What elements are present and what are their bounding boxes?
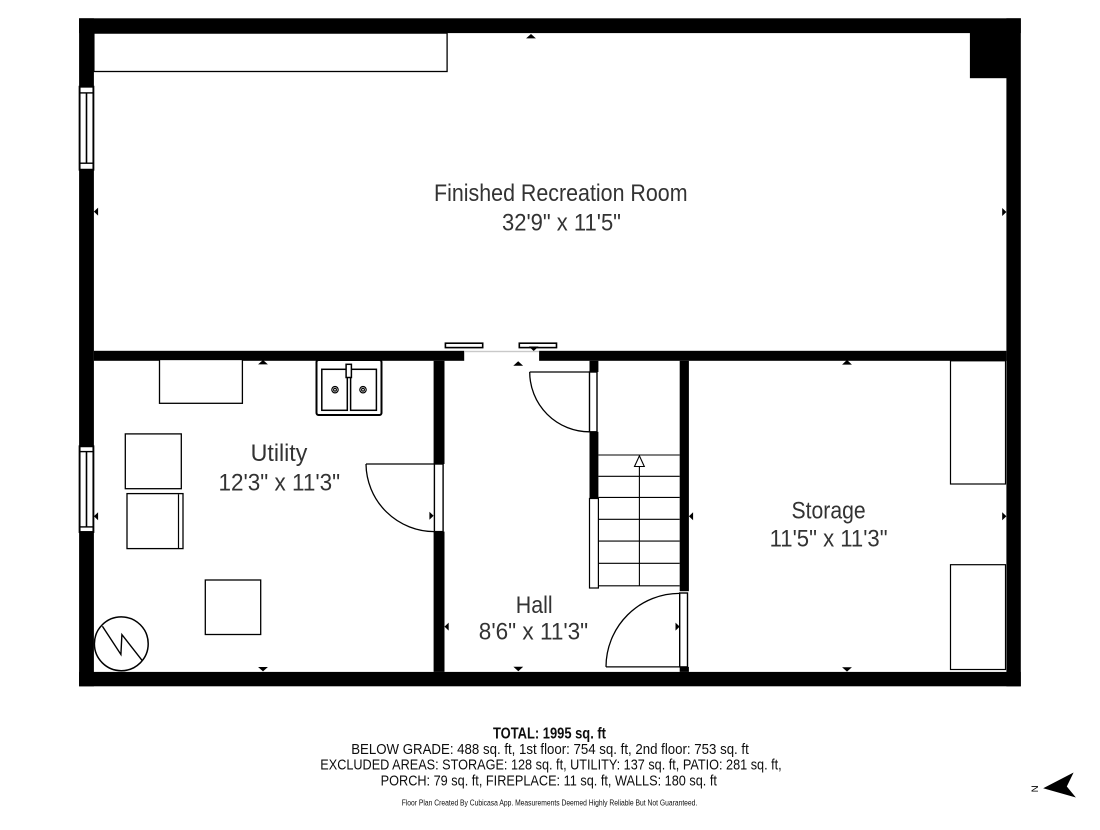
svg-text:Storage: Storage — [792, 497, 866, 524]
svg-text:Floor Plan Created By Cubicasa: Floor Plan Created By Cubicasa App. Meas… — [402, 798, 698, 807]
svg-text:12'3" x 11'3": 12'3" x 11'3" — [218, 470, 340, 497]
svg-text:EXCLUDED AREAS: STORAGE: 128 s: EXCLUDED AREAS: STORAGE: 128 sq. ft, UTI… — [320, 757, 781, 774]
svg-text:PORCH: 79 sq. ft, FIREPLACE: 1: PORCH: 79 sq. ft, FIREPLACE: 11 sq. ft, … — [381, 772, 718, 789]
svg-text:Utility: Utility — [251, 440, 308, 467]
svg-text:N: N — [1028, 785, 1039, 792]
svg-text:32'9" x 11'5": 32'9" x 11'5" — [502, 210, 621, 237]
svg-text:8'6" x 11'3": 8'6" x 11'3" — [479, 618, 588, 645]
svg-text:Finished Recreation Room: Finished Recreation Room — [434, 180, 688, 207]
svg-text:BELOW GRADE: 488 sq. ft, 1st f: BELOW GRADE: 488 sq. ft, 1st floor: 754 … — [351, 741, 749, 758]
svg-text:11'5" x 11'3": 11'5" x 11'3" — [770, 526, 888, 553]
svg-text:Hall: Hall — [516, 592, 553, 619]
svg-text:TOTAL: 1995 sq. ft: TOTAL: 1995 sq. ft — [493, 725, 606, 742]
